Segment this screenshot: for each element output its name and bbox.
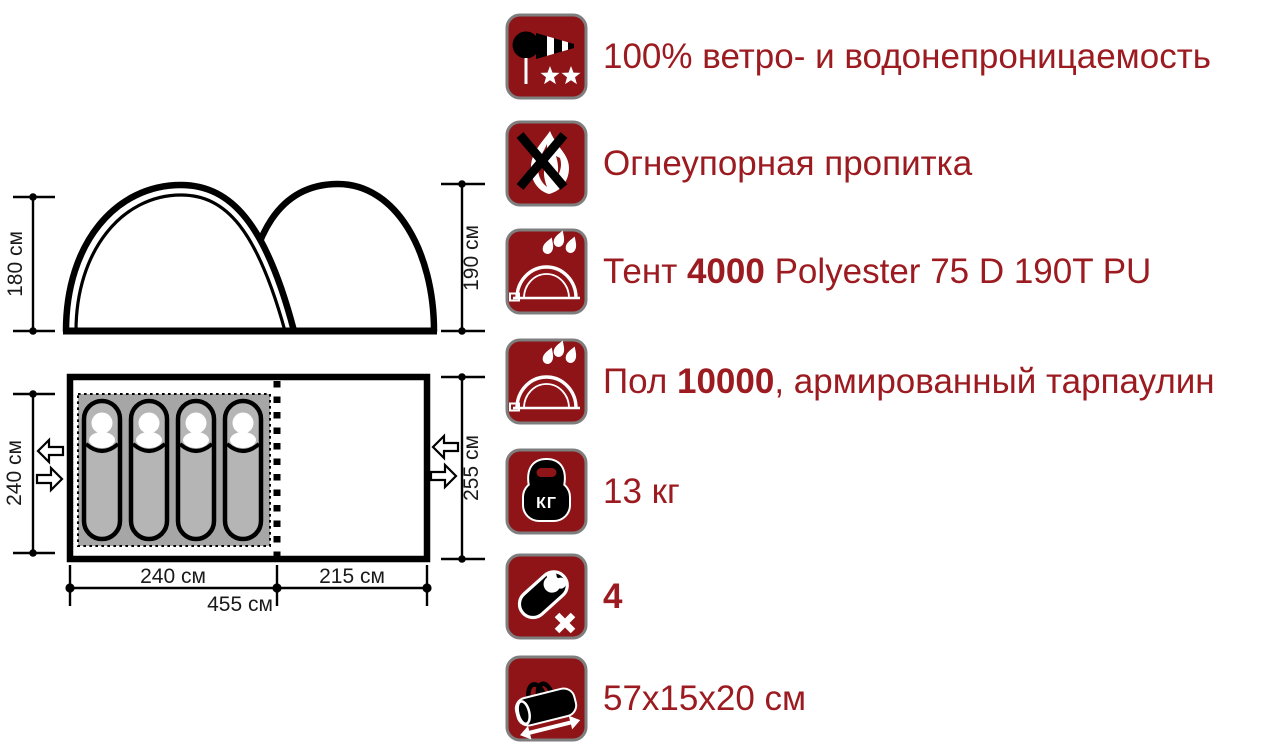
sleeping-bag-symbol [131, 401, 167, 539]
feature-text: Тент 4000 Polyester 75 D 190T PU [603, 254, 1151, 289]
feature-text: 100% ветро- и водонепроницаемость [603, 39, 1211, 74]
feature-row-fly-fabric: Тент 4000 Polyester 75 D 190T PU [505, 228, 1151, 315]
weight-kettlebell-icon: КГ [505, 448, 588, 535]
plan-width-dimensions: 240 см 215 см 455 см [65, 565, 431, 616]
packed-size-bag-icon [505, 655, 588, 742]
entrance-arrows-right [431, 436, 458, 487]
sleeping-bag-symbol [225, 401, 261, 539]
feature-row-weight: КГ 13 кг [505, 448, 680, 535]
feature-text: 57x15x20 см [603, 681, 806, 716]
feature-row-packed-size: 57x15x20 см [505, 655, 806, 742]
plan-width-vestibule-label: 215 см [319, 565, 385, 588]
plan-depth-left-label: 240 см [3, 440, 26, 506]
sleeping-bag-symbol [84, 401, 120, 539]
side-height-left-label: 180 см [4, 231, 27, 297]
feature-row-capacity: 4 [505, 553, 622, 640]
plan-width-total-label: 455 см [207, 593, 273, 616]
feature-row-floor-fabric: Пол 10000, армированный тарпаулин [505, 338, 1215, 425]
no-fire-icon [505, 120, 588, 207]
side-height-right-label: 190 см [460, 225, 483, 291]
plan-depth-right-label: 255 см [460, 435, 483, 501]
feature-text: 4 [603, 579, 622, 614]
kg-icon-label: КГ [536, 495, 557, 512]
sleeping-bag-capacity-icon [505, 553, 588, 640]
feature-text: Огнеупорная пропитка [603, 146, 972, 181]
tent-dimensions-diagram: 180 см 190 см [0, 0, 500, 749]
side-height-left-dimension: 180 см [4, 193, 55, 335]
feature-row-fire-retardant: Огнеупорная пропитка [505, 120, 972, 207]
floor-rain-icon [505, 338, 588, 425]
entrance-arrows-left [37, 440, 63, 490]
tent-rain-icon [505, 228, 588, 315]
feature-text: 13 кг [603, 474, 680, 509]
sleeping-bag-symbol [178, 401, 214, 539]
feature-row-windproof: 100% ветро- и водонепроницаемость [505, 13, 1211, 100]
tent-side-view [63, 184, 437, 331]
windsock-icon [505, 13, 588, 100]
plan-width-inner-label: 240 см [140, 565, 206, 588]
plan-depth-left-dimension: 240 см [3, 390, 55, 557]
tent-spec-infographic: { "colors": { "icon_bg": "#8e1418", "ico… [0, 0, 1276, 749]
side-height-right-dimension: 190 см [441, 180, 485, 335]
feature-text: Пол 10000, армированный тарпаулин [603, 364, 1215, 399]
tent-floor-plan [37, 377, 458, 559]
